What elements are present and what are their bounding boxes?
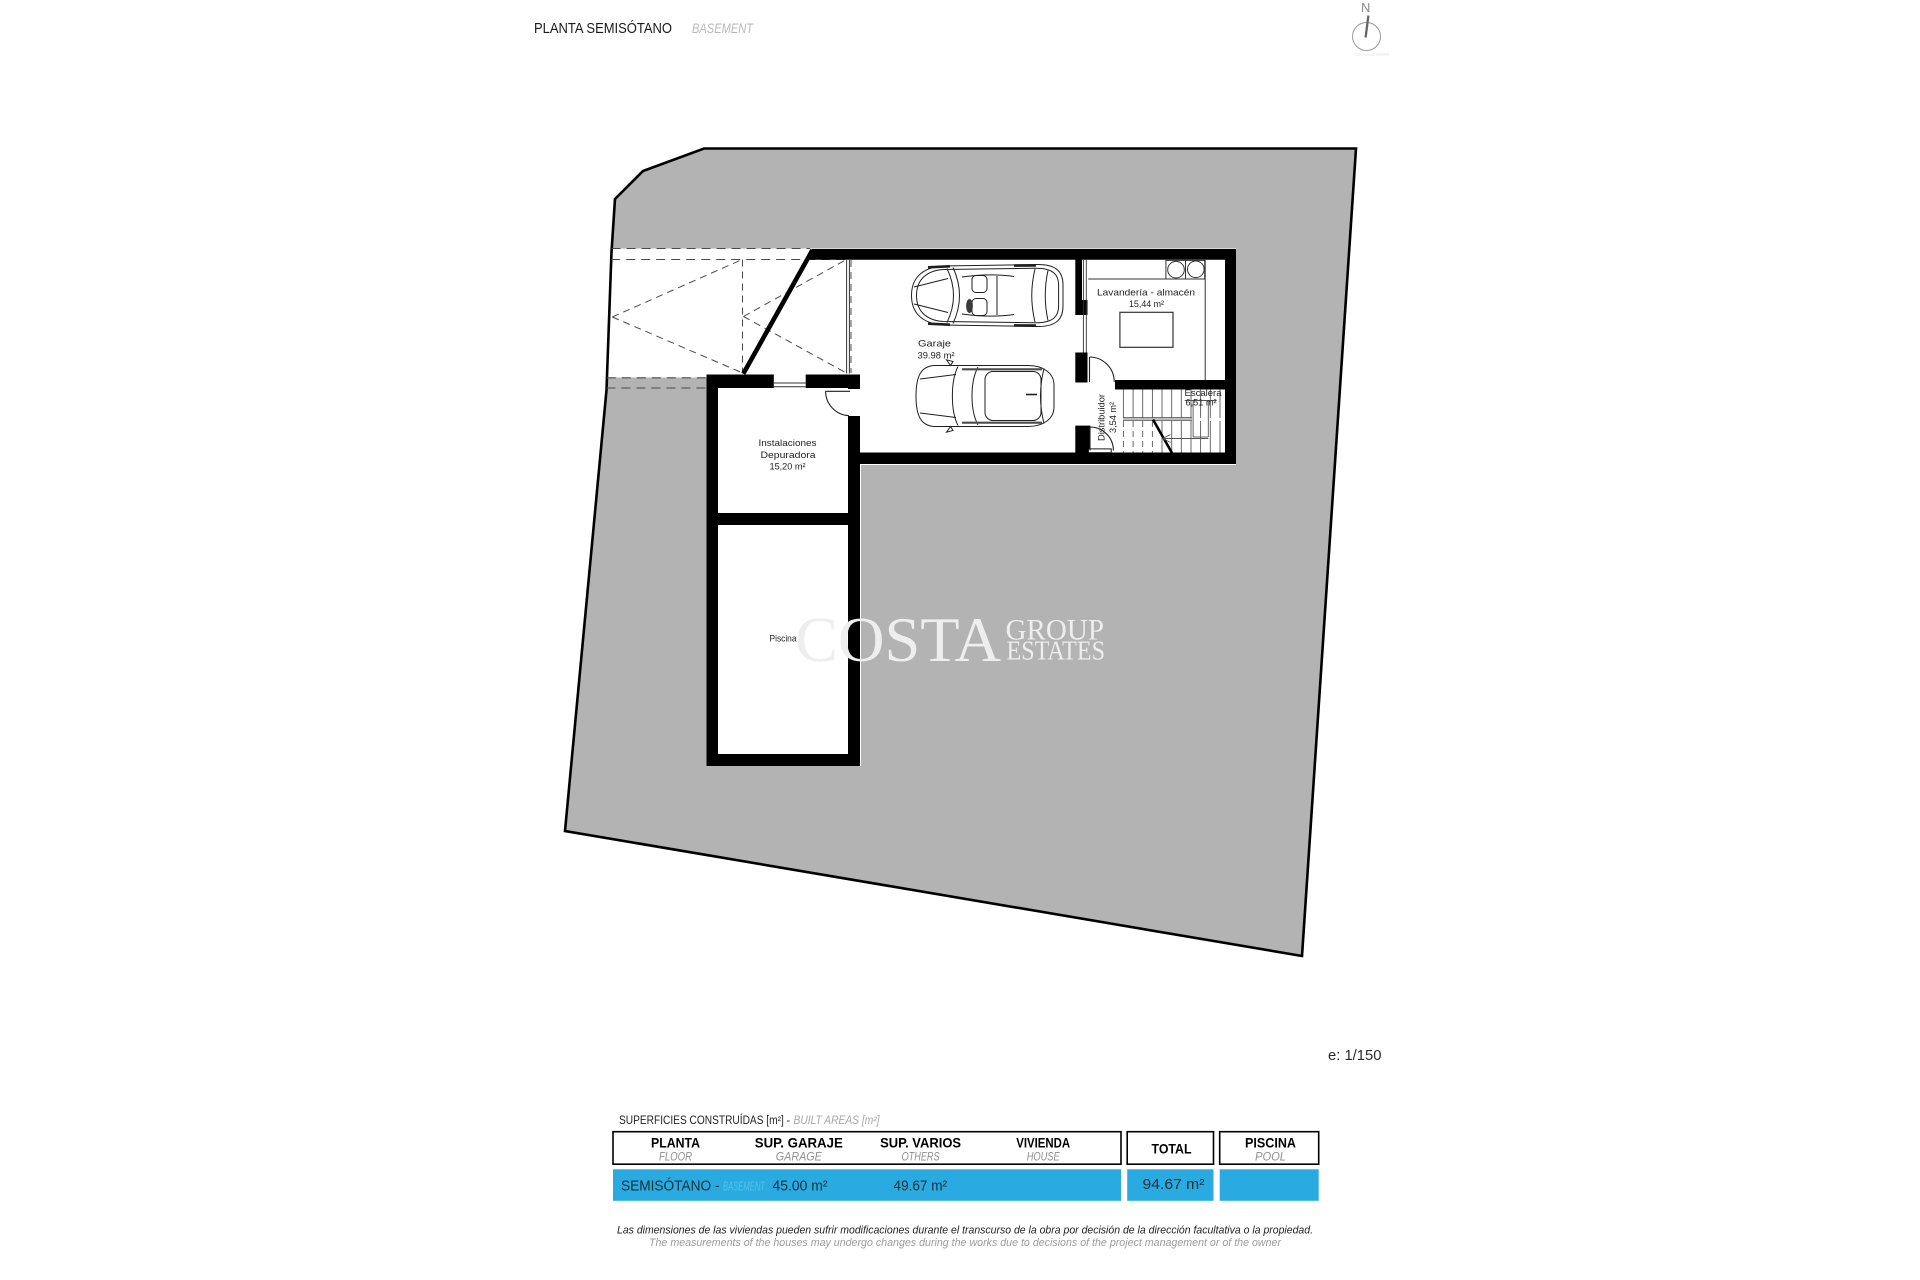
svg-text:6,51 m²: 6,51 m² <box>1186 397 1217 408</box>
svg-text:OTHERS: OTHERS <box>902 1150 940 1164</box>
svg-text:Piscina: Piscina <box>770 633 798 644</box>
svg-text:PLANTA SEMISÓTANO: PLANTA SEMISÓTANO <box>534 20 672 37</box>
svg-text:45.00 m²: 45.00 m² <box>773 1179 828 1195</box>
svg-text:Distribuidor: Distribuidor <box>1096 394 1107 441</box>
svg-text:PLANTA: PLANTA <box>651 1135 700 1151</box>
svg-text:HOUSE: HOUSE <box>1027 1150 1061 1164</box>
svg-text:GARAGE: GARAGE <box>776 1150 823 1164</box>
svg-text:Garaje: Garaje <box>918 338 951 349</box>
svg-text:15,20 m²: 15,20 m² <box>770 461 806 472</box>
svg-text:49.67 m²: 49.67 m² <box>894 1179 948 1195</box>
svg-text:VIVIENDA: VIVIENDA <box>1016 1135 1070 1151</box>
svg-text:BASEMENT: BASEMENT <box>692 20 754 36</box>
svg-text:Instalaciones: Instalaciones <box>759 437 817 448</box>
svg-text:POOL: POOL <box>1255 1150 1286 1164</box>
svg-text:Las dimensiones de las viviend: Las dimensiones de las viviendas pueden … <box>617 1225 1313 1237</box>
svg-text:BASEMENT: BASEMENT <box>723 1179 766 1194</box>
svg-text:94.67 m²: 94.67 m² <box>1143 1177 1205 1193</box>
svg-text:39.98 m²: 39.98 m² <box>918 350 955 361</box>
svg-text:N: N <box>1361 0 1370 15</box>
svg-text:PISCINA: PISCINA <box>1245 1135 1296 1151</box>
svg-text:BUILT AREAS [m²]: BUILT AREAS [m²] <box>794 1115 881 1127</box>
svg-text:SEMISÓTANO -: SEMISÓTANO - <box>621 1178 720 1195</box>
svg-text:ESTATES: ESTATES <box>1007 636 1106 666</box>
svg-text:e: 1/150: e: 1/150 <box>1328 1048 1382 1064</box>
svg-text:SUPERFICIES CONSTRUÍDAS [m²] -: SUPERFICIES CONSTRUÍDAS [m²] - <box>619 1114 790 1127</box>
svg-text:FLOOR: FLOOR <box>659 1150 692 1164</box>
svg-text:The measurements of the houses: The measurements of the houses may under… <box>649 1237 1281 1249</box>
svg-text:TOTAL: TOTAL <box>1152 1141 1192 1157</box>
svg-text:SUP. VARIOS: SUP. VARIOS <box>880 1135 961 1151</box>
svg-text:15,44 m²: 15,44 m² <box>1129 298 1164 309</box>
svg-text:costa group estates: costa group estates <box>1354 52 1389 57</box>
svg-text:COSTA: COSTA <box>795 604 1001 675</box>
svg-text:SUP. GARAJE: SUP. GARAJE <box>755 1135 843 1151</box>
svg-text:Lavandería - almacén: Lavandería - almacén <box>1097 287 1195 298</box>
svg-text:3,54 m²: 3,54 m² <box>1107 402 1118 433</box>
svg-text:Depuradora: Depuradora <box>761 449 817 460</box>
